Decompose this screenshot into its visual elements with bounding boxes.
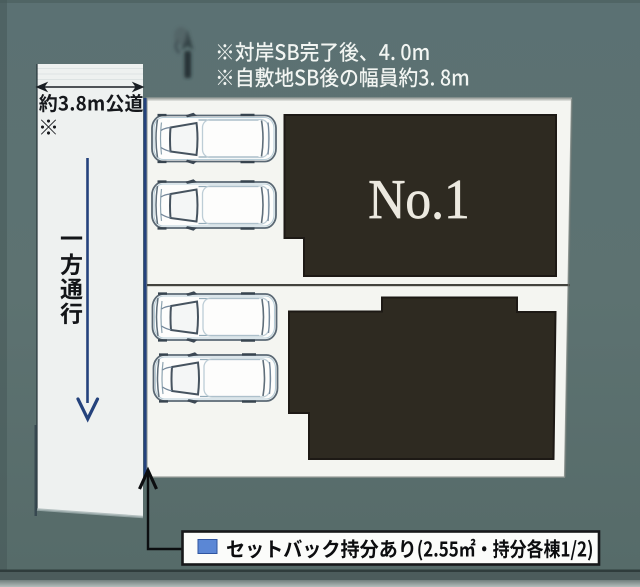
svg-text:No.1: No.1 [368, 168, 470, 230]
